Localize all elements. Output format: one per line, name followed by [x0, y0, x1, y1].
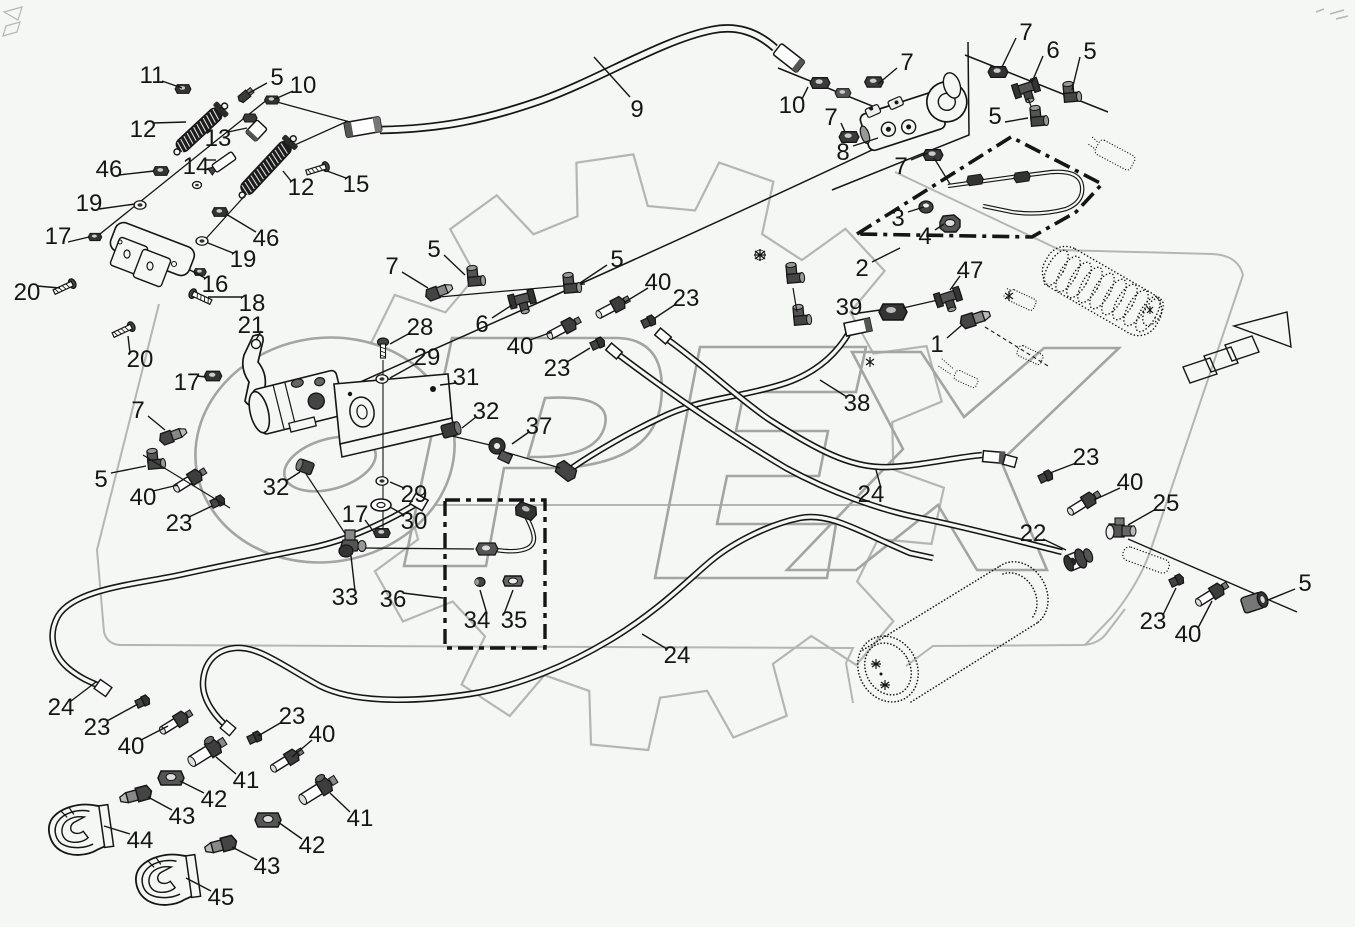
svg-text:4: 4: [918, 223, 931, 250]
svg-text:43: 43: [169, 803, 196, 830]
svg-text:7: 7: [900, 49, 913, 76]
svg-text:33: 33: [332, 584, 359, 611]
svg-text:28: 28: [407, 314, 434, 341]
svg-text:41: 41: [347, 805, 374, 832]
svg-text:29: 29: [401, 481, 428, 508]
svg-text:40: 40: [118, 733, 145, 760]
svg-text:23: 23: [279, 703, 306, 730]
svg-text:10: 10: [290, 72, 317, 99]
svg-text:44: 44: [127, 827, 154, 854]
svg-text:22: 22: [1020, 520, 1047, 547]
svg-text:46: 46: [253, 225, 280, 252]
svg-text:7: 7: [894, 153, 907, 180]
svg-text:23: 23: [166, 510, 193, 537]
svg-text:5: 5: [610, 246, 623, 273]
svg-text:46: 46: [96, 156, 123, 183]
svg-text:36: 36: [380, 586, 407, 613]
svg-text:30: 30: [401, 508, 428, 535]
svg-text:40: 40: [507, 333, 534, 360]
svg-text:11: 11: [140, 62, 165, 89]
svg-text:16: 16: [202, 271, 229, 298]
svg-text:23: 23: [1073, 444, 1100, 471]
svg-text:5: 5: [1083, 38, 1096, 65]
svg-text:5: 5: [988, 103, 1001, 130]
svg-text:40: 40: [130, 484, 157, 511]
svg-text:1: 1: [930, 331, 943, 358]
svg-text:23: 23: [84, 714, 111, 741]
svg-text:7: 7: [385, 253, 398, 280]
svg-text:47: 47: [957, 257, 984, 284]
svg-text:9: 9: [630, 96, 643, 123]
svg-text:35: 35: [501, 607, 528, 634]
svg-text:7: 7: [131, 397, 144, 424]
svg-text:34: 34: [464, 607, 491, 634]
svg-text:12: 12: [288, 174, 315, 201]
svg-text:19: 19: [230, 246, 257, 273]
svg-text:42: 42: [201, 786, 228, 813]
svg-text:13: 13: [205, 125, 232, 152]
svg-text:24: 24: [858, 481, 885, 508]
svg-text:5: 5: [427, 236, 440, 263]
svg-text:8: 8: [836, 139, 849, 166]
svg-text:5: 5: [94, 466, 107, 493]
svg-text:20: 20: [127, 346, 154, 373]
svg-text:24: 24: [48, 694, 75, 721]
svg-text:23: 23: [1140, 608, 1167, 635]
svg-text:12: 12: [130, 116, 157, 143]
svg-text:24: 24: [664, 642, 691, 669]
svg-text:40: 40: [1117, 469, 1144, 496]
svg-text:40: 40: [309, 721, 336, 748]
svg-text:19: 19: [76, 190, 103, 217]
svg-text:20: 20: [14, 279, 41, 306]
svg-text:17: 17: [45, 223, 72, 250]
svg-text:42: 42: [299, 832, 326, 859]
svg-text:6: 6: [1046, 37, 1059, 64]
svg-text:17: 17: [342, 501, 369, 528]
svg-text:2: 2: [855, 255, 868, 282]
svg-text:7: 7: [824, 104, 837, 131]
svg-text:40: 40: [1175, 621, 1202, 648]
svg-text:43: 43: [254, 853, 281, 880]
svg-text:5: 5: [270, 64, 283, 91]
svg-text:21: 21: [238, 312, 265, 339]
svg-text:7: 7: [1019, 19, 1032, 46]
svg-text:29: 29: [414, 344, 441, 371]
svg-text:25: 25: [1153, 490, 1180, 517]
svg-text:37: 37: [526, 413, 553, 440]
svg-text:41: 41: [233, 767, 260, 794]
svg-text:15: 15: [343, 171, 370, 198]
svg-text:31: 31: [453, 364, 480, 391]
svg-text:6: 6: [475, 311, 488, 338]
svg-text:23: 23: [673, 285, 700, 312]
svg-text:5: 5: [1298, 570, 1311, 597]
svg-text:14: 14: [183, 153, 210, 180]
svg-text:39: 39: [836, 294, 863, 321]
svg-text:10: 10: [779, 92, 806, 119]
svg-text:17: 17: [174, 369, 201, 396]
svg-text:3: 3: [891, 205, 904, 232]
svg-text:23: 23: [544, 355, 571, 382]
svg-text:38: 38: [844, 390, 871, 417]
svg-text:45: 45: [208, 884, 235, 911]
svg-text:32: 32: [473, 398, 500, 425]
svg-text:40: 40: [645, 269, 672, 296]
svg-text:32: 32: [263, 474, 290, 501]
